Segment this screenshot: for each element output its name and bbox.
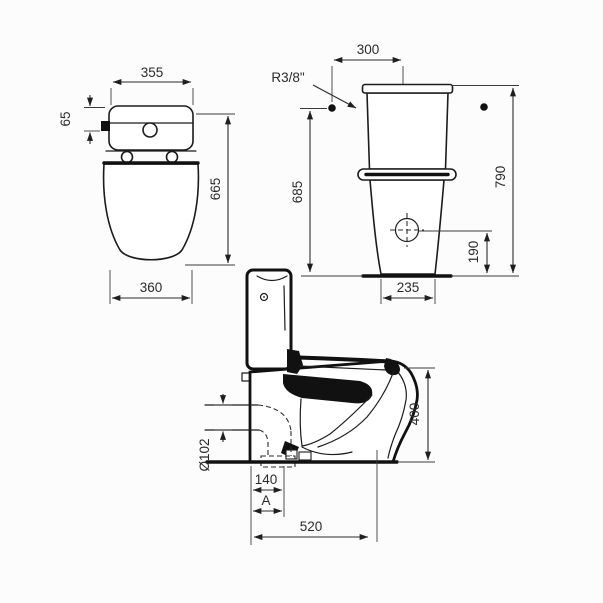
dim-depth: 520 [254, 519, 368, 537]
front-inlet-nub [101, 121, 110, 131]
inlet-point-right [480, 103, 488, 111]
side-lid-slot [261, 272, 278, 277]
side-seat [298, 358, 389, 362]
rear-view: 300 R3/8" 685 790 190 [271, 42, 519, 304]
dim-label-685: 685 [290, 181, 305, 204]
side-cistern-slot [253, 362, 276, 367]
dim-label-o102: Ø102 [197, 438, 212, 471]
side-view: 400 Ø102 140 A 520 [197, 270, 435, 545]
inlet-point-left [328, 104, 336, 112]
dim-bowl-width: 360 [110, 270, 192, 304]
dim-variable-setout: A [253, 493, 282, 511]
rear-cistern-lid [363, 85, 453, 94]
dim-label-300: 300 [357, 42, 380, 57]
dim-tank-width: 355 [111, 65, 193, 105]
dim-label-665: 665 [208, 178, 223, 201]
dim-label-400: 400 [407, 403, 422, 426]
dim-label-235: 235 [397, 280, 420, 295]
wc-technical-drawing: 355 65 665 360 [0, 0, 603, 603]
front-hinge-right [167, 152, 178, 163]
dim-inlet-offset: 65 [58, 95, 105, 144]
dim-supply-height: 190 [466, 233, 487, 273]
dim-label-140: 140 [255, 472, 278, 487]
front-view: 355 65 665 360 [58, 65, 235, 304]
front-flush-button [143, 123, 157, 137]
dim-inlet-height: 685 [290, 109, 363, 277]
dim-outlet-setout: 140 [253, 472, 282, 490]
dim-label-360: 360 [140, 280, 163, 295]
dim-total-height: 790 [451, 86, 519, 277]
dim-outlet-diameter: Ø102 [197, 394, 232, 472]
front-hinge-left [122, 152, 133, 163]
front-bowl-outline [104, 164, 199, 260]
dim-base-width: 235 [381, 279, 435, 304]
dim-label-520: 520 [300, 519, 323, 534]
rear-pedestal [370, 180, 444, 274]
rear-cistern [367, 93, 448, 169]
dim-label-65: 65 [58, 111, 73, 126]
dim-label-a: A [261, 493, 270, 508]
dim-label-790: 790 [493, 166, 508, 189]
dim-label-355: 355 [141, 65, 164, 80]
dim-label-190: 190 [466, 241, 481, 264]
side-outlet-piece-2 [299, 452, 311, 460]
inlet-thread-label: R3/8" [271, 70, 305, 85]
